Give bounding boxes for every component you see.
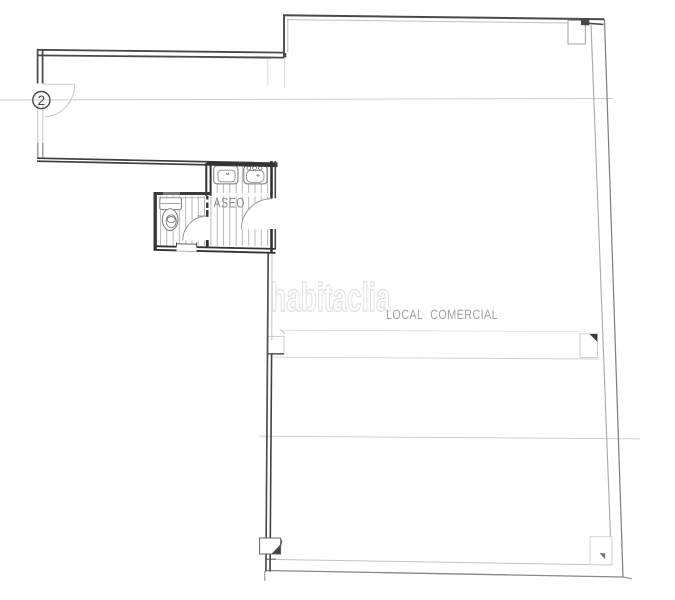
svg-text:LOCAL COMERCIAL: LOCAL COMERCIAL (386, 307, 498, 323)
svg-text:habitaclia: habitaclia (271, 275, 391, 320)
svg-text:ASEO: ASEO (213, 195, 245, 211)
svg-text:2: 2 (38, 93, 46, 108)
